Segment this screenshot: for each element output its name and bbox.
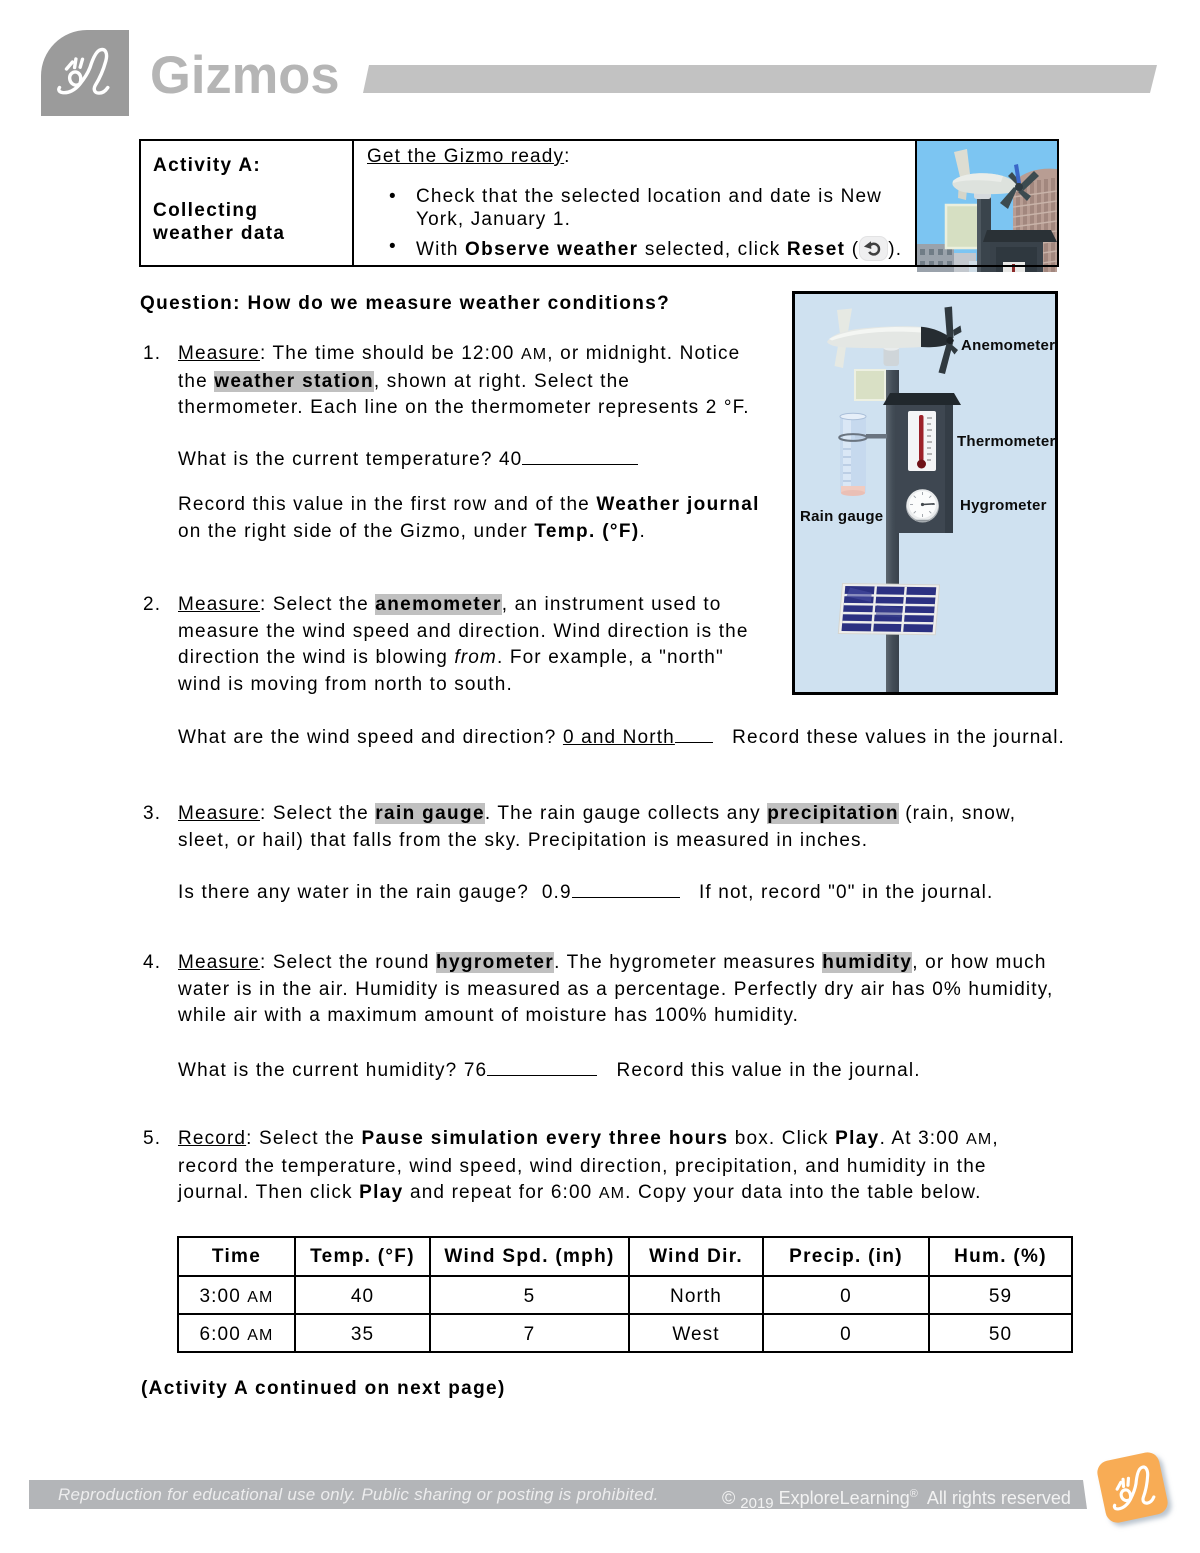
svg-text:Anemometer: Anemometer — [961, 337, 1055, 354]
svg-text:Thermometer: Thermometer — [957, 433, 1055, 450]
svg-text:Hygrometer: Hygrometer — [960, 497, 1047, 514]
svg-text:Rain gauge: Rain gauge — [800, 508, 883, 525]
